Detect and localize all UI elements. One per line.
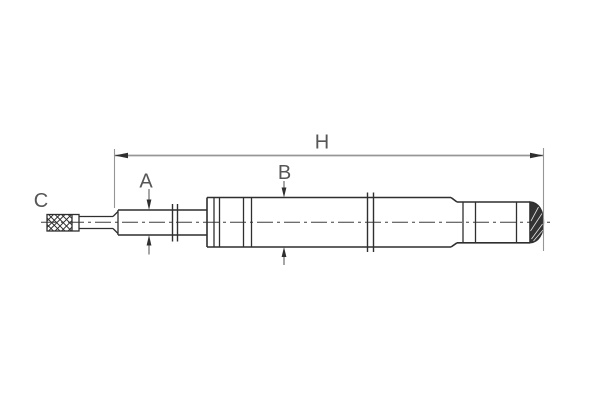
a-arrow-down: [147, 200, 152, 211]
dimension-b: B: [278, 162, 291, 265]
dimension-b-label: B: [278, 162, 291, 184]
shock-absorber-drawing: H A B C: [0, 0, 600, 400]
b-arrow-up: [282, 247, 287, 257]
dimension-h-label: H: [315, 132, 329, 154]
b-arrow-down: [282, 188, 287, 198]
technical-drawing-page: H A B C: [0, 0, 600, 400]
end-cap: [530, 202, 544, 243]
h-arrow-right: [530, 153, 544, 158]
dimension-a: A: [139, 171, 153, 255]
dimension-h: H: [115, 132, 544, 252]
h-arrow-left: [115, 153, 129, 158]
a-arrow-up: [147, 235, 152, 246]
label-c: C: [34, 190, 48, 212]
dimension-a-label: A: [139, 171, 153, 193]
